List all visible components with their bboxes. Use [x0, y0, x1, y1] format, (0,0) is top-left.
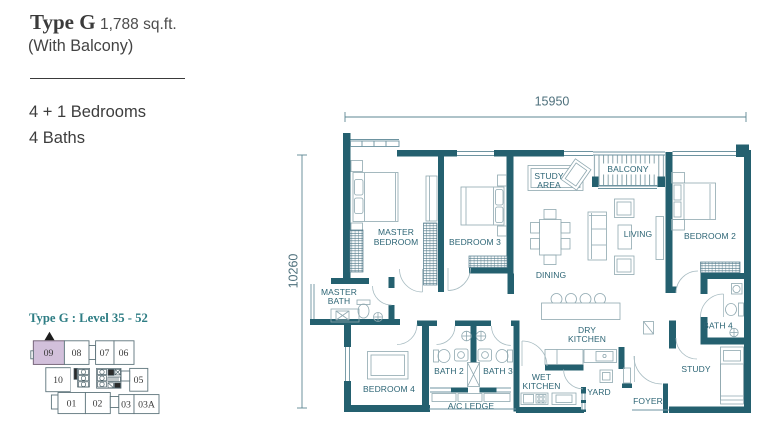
svg-text:KITCHEN: KITCHEN: [522, 381, 560, 391]
svg-text:09: 09: [44, 348, 54, 359]
svg-text:BEDROOM 3: BEDROOM 3: [449, 237, 501, 247]
svg-text:FOYER: FOYER: [633, 396, 663, 406]
svg-text:DINING: DINING: [536, 270, 566, 280]
svg-text:02: 02: [93, 399, 103, 410]
svg-text:YARD: YARD: [587, 387, 610, 397]
svg-text:BATH 4: BATH 4: [703, 321, 733, 331]
svg-text:KITCHEN: KITCHEN: [568, 334, 606, 344]
svg-text:06: 06: [119, 348, 129, 359]
svg-text:05: 05: [134, 375, 144, 386]
svg-text:AREA: AREA: [537, 180, 561, 190]
svg-text:LIVING: LIVING: [624, 229, 652, 239]
svg-text:03A: 03A: [138, 400, 155, 411]
svg-text:15950: 15950: [535, 95, 570, 109]
svg-text:10: 10: [53, 375, 63, 386]
svg-text:MASTER: MASTER: [378, 227, 414, 237]
svg-text:BATH 2: BATH 2: [434, 366, 464, 376]
svg-text:BATH: BATH: [328, 296, 350, 306]
svg-text:BEDROOM 4: BEDROOM 4: [363, 384, 415, 394]
svg-text:BEDROOM: BEDROOM: [374, 237, 419, 247]
svg-text:07: 07: [100, 348, 110, 359]
svg-text:A/C LEDGE: A/C LEDGE: [448, 401, 494, 411]
svg-text:10260: 10260: [287, 254, 301, 289]
svg-text:BALCONY: BALCONY: [607, 164, 649, 174]
svg-text:STUDY: STUDY: [681, 364, 711, 374]
svg-text:08: 08: [72, 348, 82, 359]
svg-text:01: 01: [67, 399, 77, 410]
svg-text:03: 03: [121, 400, 131, 411]
svg-text:BEDROOM 2: BEDROOM 2: [684, 231, 736, 241]
svg-text:BATH 3: BATH 3: [483, 366, 513, 376]
